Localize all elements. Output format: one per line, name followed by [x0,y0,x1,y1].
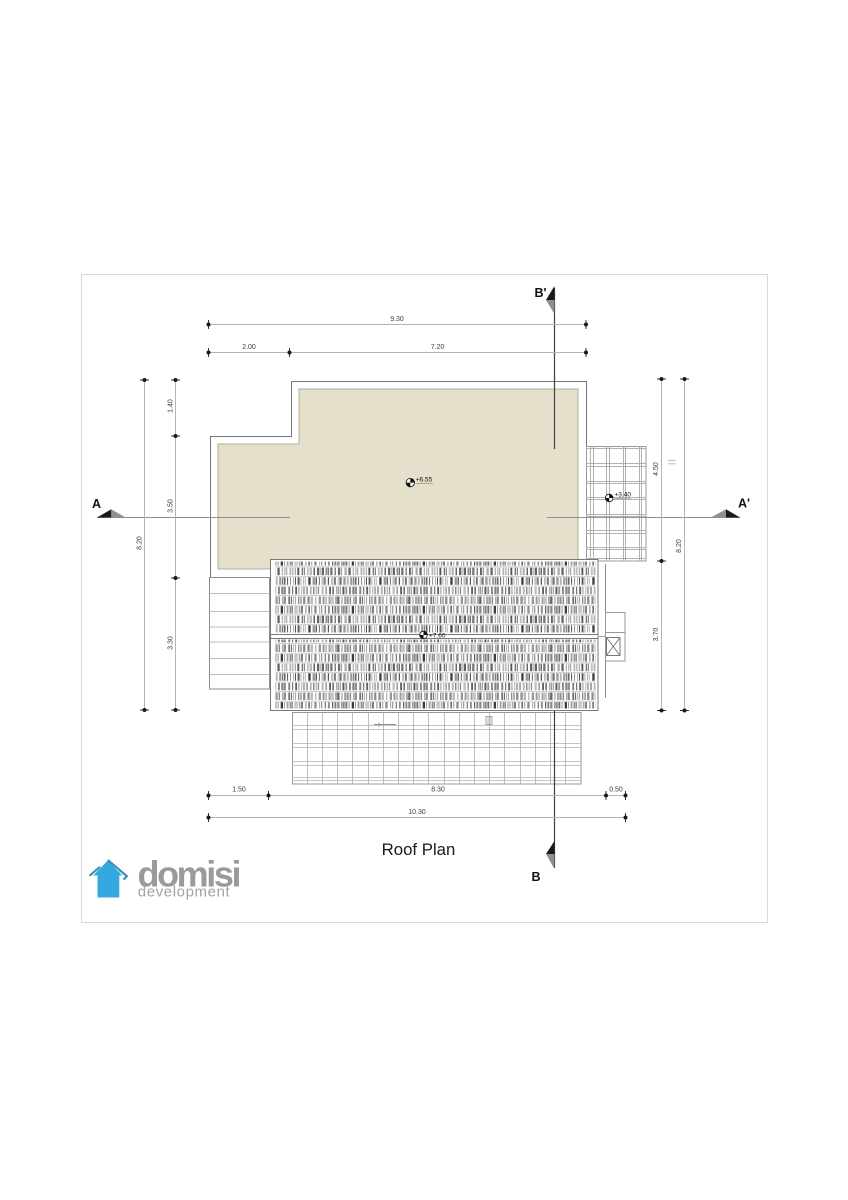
svg-text:A: A [92,497,101,511]
svg-text:4.50: 4.50 [653,462,660,476]
svg-text:8.20: 8.20 [136,536,143,550]
svg-text:+6.55: +6.55 [416,477,433,484]
svg-text:+7.60: +7.60 [429,633,446,640]
svg-text:Roof Plan: Roof Plan [382,840,456,859]
svg-text:3.70: 3.70 [653,628,660,642]
svg-text:2.00: 2.00 [242,344,256,351]
svg-text:+3.40: +3.40 [615,492,632,499]
svg-text:9.30: 9.30 [390,316,404,323]
svg-text:A': A' [738,497,750,511]
svg-text:1.40: 1.40 [168,399,175,413]
svg-text:B': B' [535,286,547,300]
svg-text:B: B [531,870,540,884]
svg-text:3.50: 3.50 [168,499,175,513]
svg-text:10.30: 10.30 [408,809,426,816]
svg-text:development: development [138,884,231,901]
svg-text:1.50: 1.50 [232,787,246,794]
svg-text:8.30: 8.30 [431,787,445,794]
svg-text:7.20: 7.20 [431,344,445,351]
svg-text:3.30: 3.30 [168,636,175,650]
svg-text:0.50: 0.50 [609,787,623,794]
svg-text:8.20: 8.20 [676,539,683,553]
